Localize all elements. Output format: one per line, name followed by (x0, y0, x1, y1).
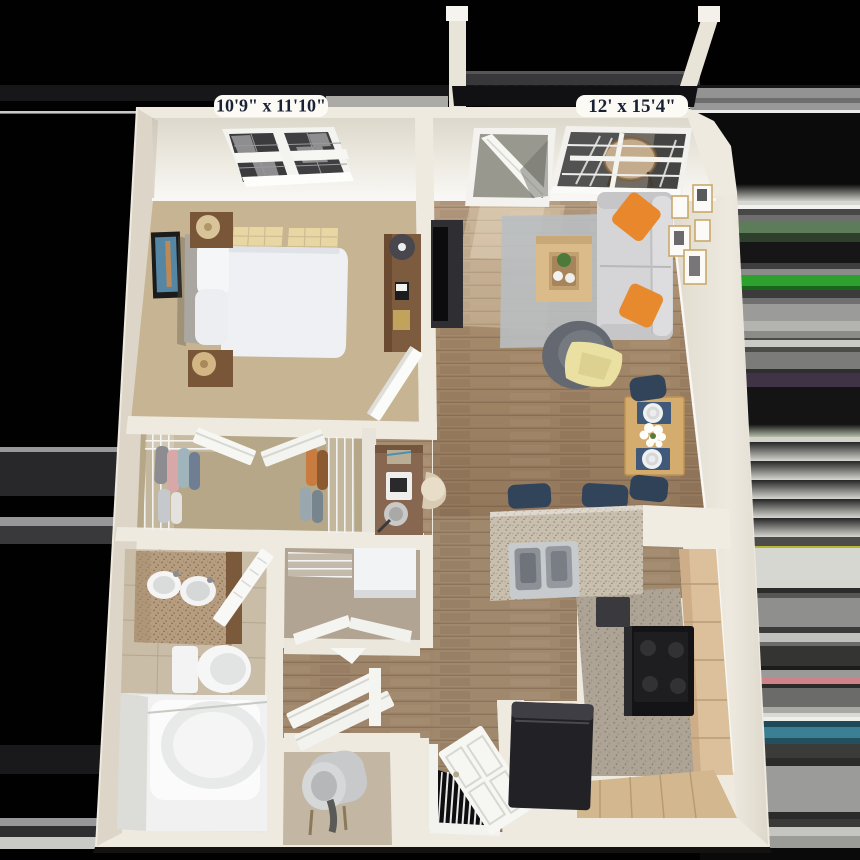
svg-text:10'9" x 11'10": 10'9" x 11'10" (216, 96, 326, 116)
svg-text:12' x 15'4": 12' x 15'4" (588, 96, 676, 117)
